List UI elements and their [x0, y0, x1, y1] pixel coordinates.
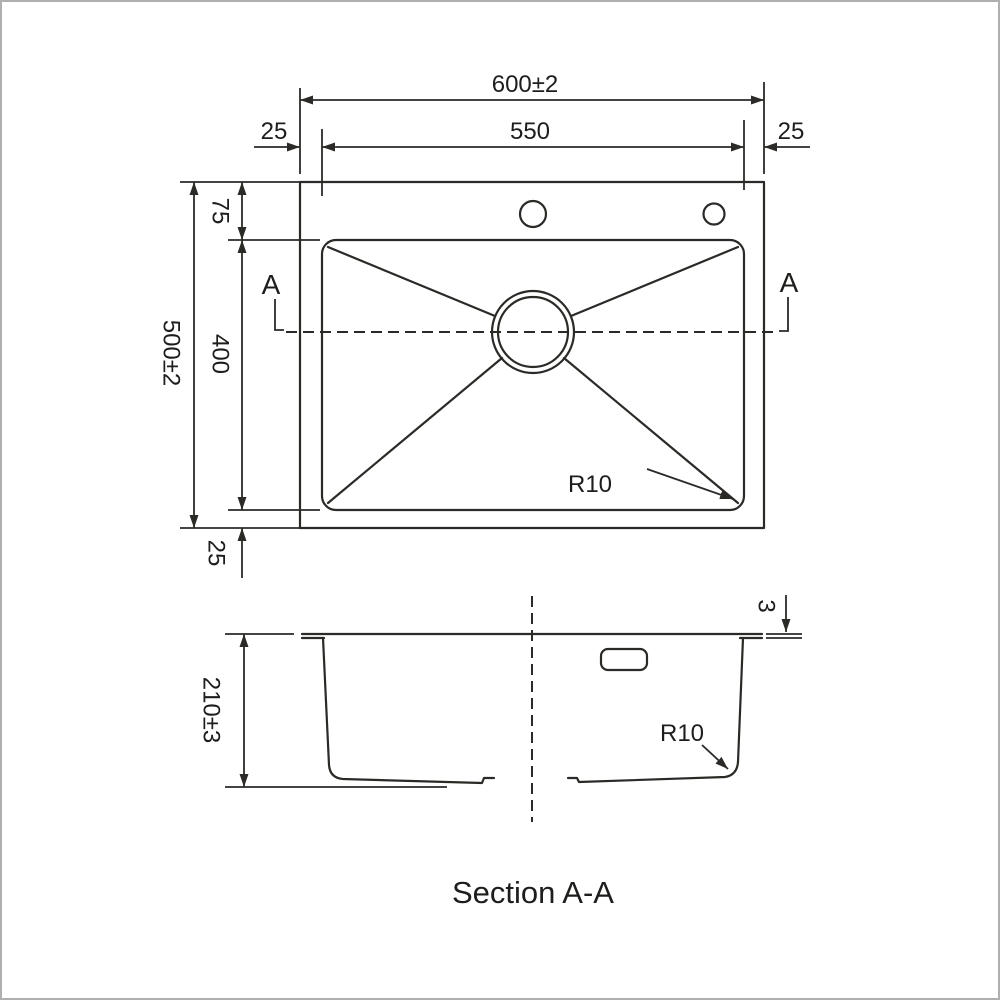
section-marker-letter-left: A	[262, 269, 281, 300]
section-right-wall	[568, 638, 743, 782]
section-left-wall	[323, 638, 494, 783]
radius-callout-top-view: R10	[568, 469, 733, 499]
dim-top-margin-label: 75	[207, 198, 234, 225]
drain-crease-lines	[328, 247, 738, 503]
section-marker-elbow-right	[779, 297, 788, 331]
section-marker-letter-right: A	[780, 267, 799, 298]
dim-depth-label: 210±3	[198, 677, 225, 744]
overflow-hole	[601, 649, 647, 670]
dim-basin-height-label: 400	[207, 334, 234, 374]
dim-right-margin-label: 25	[778, 118, 805, 145]
dim-bottom-margin: 25	[203, 528, 243, 578]
radius-callout-section-label: R10	[660, 720, 704, 747]
section-marker-elbow-left	[275, 299, 284, 330]
sink-drawing-svg: A A 600±2 550 25 25	[2, 2, 1000, 1002]
dim-basin-width-label: 550	[510, 118, 550, 145]
basin-rect	[322, 240, 744, 510]
dim-overall-width-label: 600±2	[492, 71, 559, 98]
section-caption: Section A-A	[452, 875, 614, 910]
faucet-hole-main	[520, 201, 546, 227]
radius-callout-section: R10	[660, 720, 728, 769]
section-view: 210±3 3 R10 Section A-A	[198, 595, 803, 910]
faucet-hole-secondary	[704, 204, 725, 225]
dim-left-margin: 25	[254, 118, 300, 147]
radius-callout-top-view-label: R10	[568, 471, 612, 498]
technical-drawing-page: A A 600±2 550 25 25	[0, 0, 1000, 1000]
dim-basin-width: 550	[322, 118, 744, 196]
dim-rim-thickness-label: 3	[753, 599, 780, 612]
dim-right-margin: 25	[764, 118, 810, 147]
sink-outer-rect	[300, 182, 764, 528]
top-view: A A 600±2 550 25 25	[158, 71, 811, 578]
dim-left-margin-label: 25	[261, 118, 288, 145]
dim-overall-height-label: 500±2	[158, 320, 185, 387]
dim-depth: 210±3	[198, 634, 448, 787]
dim-top-margin: 75	[207, 182, 321, 240]
dim-rim-thickness: 3	[753, 595, 803, 638]
dim-bottom-margin-label: 25	[203, 540, 230, 567]
